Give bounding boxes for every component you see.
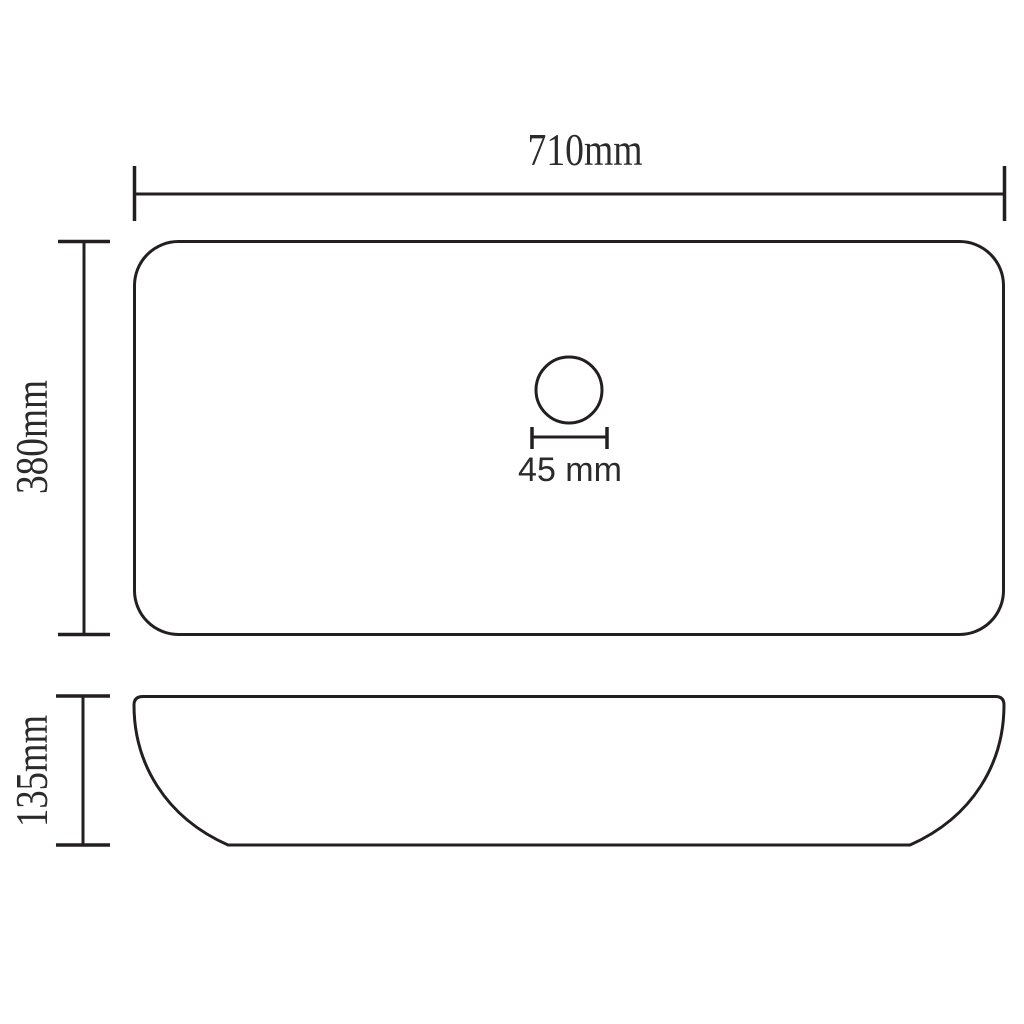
width-dimension: 710mm	[135, 124, 1005, 221]
drain-dimension: 45 mm	[518, 427, 622, 489]
technical-drawing-svg: 710mm 45 mm 380mm	[0, 0, 1024, 1024]
drain-dimension-label: 45 mm	[518, 451, 622, 489]
sink-dimension-drawing: 710mm 45 mm 380mm	[0, 0, 1024, 1024]
side-view	[134, 697, 1004, 846]
width-dimension-label: 710mm	[528, 124, 643, 175]
side-view-basin-outline	[134, 697, 1004, 846]
top-view: 45 mm	[135, 242, 1004, 635]
depth-dimension: 135mm	[6, 696, 110, 845]
height-dimension-label: 380mm	[6, 380, 57, 494]
drain-hole	[536, 357, 602, 423]
height-dimension: 380mm	[6, 242, 110, 635]
depth-dimension-label: 135mm	[6, 715, 57, 827]
